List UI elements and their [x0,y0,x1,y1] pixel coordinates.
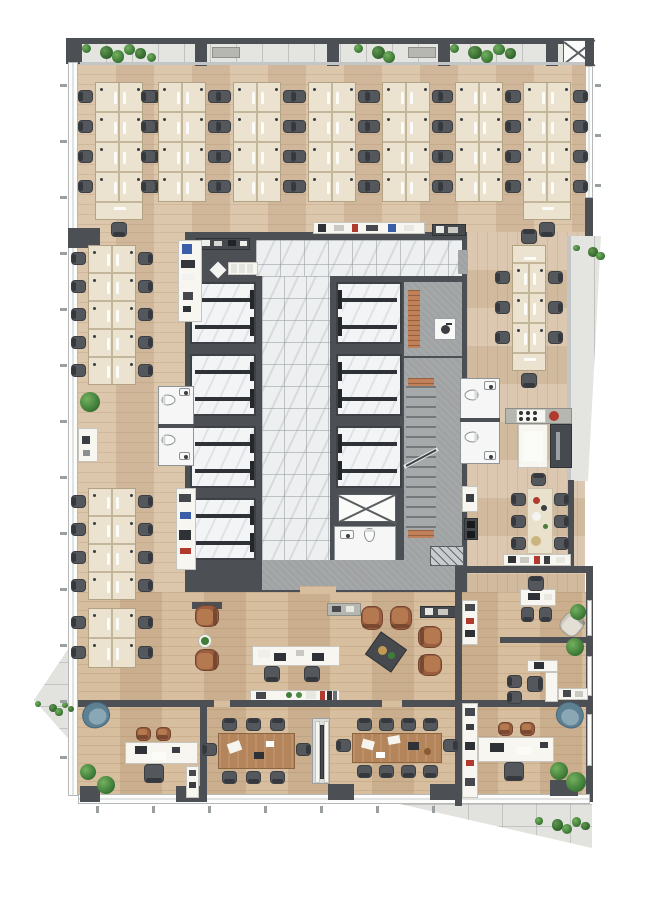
item [228,240,236,246]
meeting-chair [401,765,416,778]
monitor [401,122,404,134]
mullion-tick [432,806,435,813]
office-a-guest-2 [539,607,552,622]
task-chair [291,150,306,163]
monitor [177,152,180,164]
chair-back [533,474,544,478]
workstation-desk [455,142,479,172]
item [239,264,245,273]
mullion-tick [60,476,67,479]
item [575,691,583,697]
chair-back [496,333,500,342]
item [544,594,552,600]
locker-strip [408,290,420,348]
elevator-cab [190,354,256,416]
chair-back [148,648,152,657]
task-chair [291,120,306,133]
desk-item [275,118,278,121]
meeting-chair [246,771,261,784]
meeting-chair [296,743,311,756]
monitor [410,122,413,134]
task-chair [71,280,86,293]
terrace-br-plants [538,806,590,846]
elevator-rail [195,370,251,374]
desk-item [163,148,166,151]
monitor [107,618,110,630]
office-c-guest-2 [520,722,535,736]
workstation-desk [119,112,143,142]
plant-icon [35,701,41,707]
mullion-tick [60,308,67,311]
item [327,691,332,700]
monitor [524,333,527,345]
desk-item [565,88,568,91]
elevator-rail [341,442,397,446]
chair-back [79,122,83,131]
item [520,557,529,563]
sink [484,451,496,460]
item [408,742,419,750]
chair-back [530,577,542,581]
elevator-rail [195,298,251,302]
monitor [551,182,554,194]
monitor [252,182,255,194]
monitor [116,338,119,350]
monitor [116,366,119,378]
item [541,505,547,511]
faucet [184,391,188,395]
monitor [327,92,330,104]
item [467,521,475,528]
desk-item [238,148,241,151]
lounge-armchair [195,649,219,671]
door-slit [250,453,254,461]
task-chair [573,150,588,163]
elevator-door [250,506,254,552]
chair-back [248,779,259,783]
chair-back [523,383,535,387]
office-floor-plan [0,0,656,900]
monitor [114,92,117,104]
balcony-plants-3 [452,44,516,63]
elevator-rail [195,469,251,473]
item [318,224,326,232]
whiteboard-divider [312,718,330,784]
chair-back [148,525,152,534]
desk-item [275,178,278,181]
task-chair [71,308,86,321]
desk-item [130,251,133,254]
task-chair [495,331,510,344]
monitor [107,553,110,565]
item [490,743,504,752]
chair-back [381,719,392,723]
task-chair [71,495,86,508]
item [333,691,337,700]
desk-item [93,363,96,366]
cook-pot [549,411,559,421]
chair-back [224,779,235,783]
desk-item [238,178,241,181]
meeting-chair [246,718,261,731]
task-chair [78,150,93,163]
chair-back [508,677,512,686]
sideboard-left-wall [78,428,98,462]
task-chair [291,90,306,103]
monitor [107,525,110,537]
monitor [542,92,545,104]
mullion-tick [60,532,67,535]
armchair-back [499,730,510,734]
sink [340,530,354,539]
task-chair [438,90,453,103]
task-chair [138,646,153,659]
desk-item [93,578,96,581]
plant-left-strip [80,392,100,412]
task-chair [71,336,86,349]
item [152,752,166,760]
chair-back [381,773,392,777]
item [181,260,195,268]
item [254,752,264,759]
desk-item [130,550,133,553]
task-chair [141,180,156,193]
monitor [410,152,413,164]
chair-back [507,92,511,101]
monitor [327,152,330,164]
armchair-seat [559,706,582,728]
meeting-chair [270,771,285,784]
toilet [465,390,479,401]
item [523,431,543,461]
mullion-tick [208,806,211,813]
workstation-desk [88,608,112,638]
workstation-desk [88,329,112,357]
desk-item [528,118,531,121]
monitor [336,122,339,134]
elevator-door [250,362,254,408]
monitor [524,358,536,361]
desk-item [93,335,96,338]
task-chair [71,579,86,592]
wheelchair-icon [446,323,452,325]
balcony-bench-2 [408,47,436,58]
faucet [346,534,350,538]
meeting-chair [423,765,438,778]
workstation-desk [112,357,136,385]
workstation-desk [512,323,529,353]
item [465,604,475,611]
mullion-tick [60,196,67,199]
desk-item [130,363,133,366]
item [534,662,544,669]
desk-item [424,178,427,181]
wall-right-offices-top [460,566,590,573]
item [183,292,193,300]
task-chair [78,180,93,193]
workstation-desk [112,608,136,638]
item [320,691,325,700]
workstation-desk [158,172,182,202]
workstation-desk [112,245,136,273]
lounge-armchair [390,606,412,630]
workstation-desk [88,516,112,544]
item [526,411,530,415]
item [135,746,147,754]
elevator-rail [195,397,251,401]
meeting-chair [554,515,569,528]
desk-item [460,88,463,91]
pier-bottom-3 [328,784,354,800]
chair-back [512,495,516,504]
item [182,244,192,254]
chair-back [142,122,146,131]
mullion-tick [60,252,67,255]
desk-item [93,614,96,617]
task-chair [573,120,588,133]
chair-back [272,719,283,723]
armchair-back [521,730,532,734]
monitor [123,152,126,164]
chair-back [79,182,83,191]
accessible-sign [434,318,456,340]
task-chair [141,90,156,103]
monitor [123,122,126,134]
workstation-desk [88,544,112,572]
item [465,630,475,637]
window-right-lower-3 [587,714,592,766]
workstation-desk [88,245,112,273]
task-chair [216,120,231,133]
elevator-door [338,434,342,480]
chair-back [512,517,516,526]
armchair-seat [197,609,213,625]
balcony-bench-1 [212,47,240,58]
armchair-back [157,735,168,739]
desk-item [460,148,463,151]
workstation-desk [479,142,503,172]
workstation-desk [119,172,143,202]
task-chair [141,120,156,133]
chair-back [508,693,512,702]
item [214,241,222,246]
item [543,524,548,529]
task-chair [521,229,537,244]
task-chair [138,551,153,564]
workstation-desk [112,329,136,357]
chair-back [439,182,443,191]
mullion-tick [595,84,601,87]
desk-item [163,178,166,181]
monitor [524,303,527,315]
monitor [107,254,110,266]
chair-back [148,310,152,319]
workstation-desk [182,172,206,202]
item [366,225,378,231]
task-chair [71,252,86,265]
task-chair [521,373,537,388]
wc-annex-right-divider [460,418,500,422]
plant-icon [82,44,91,53]
mullion-tick [60,588,67,591]
desk-item [528,178,531,181]
workstation-desk [88,357,112,385]
door-slit [250,309,254,317]
office-left-chair [144,764,164,783]
desk-item [497,178,500,181]
chair-back [425,773,436,777]
task-chair [71,551,86,564]
item [467,531,475,538]
monitor [533,273,536,285]
chair-back [496,273,500,282]
task-chair [78,120,93,133]
sink [179,388,190,396]
chair-back [146,778,162,782]
workstation-desk [112,301,136,329]
door-slit [338,309,342,317]
monitor [533,303,536,315]
task-chair [71,616,86,629]
chair-back [425,719,436,723]
end-desk [95,202,143,220]
item [528,593,540,600]
workstation-desk [382,172,406,202]
whiteboard-panel [324,721,329,783]
shaft-core [338,494,396,522]
desk-item [163,88,166,91]
workstation-desk [112,572,136,600]
item [404,225,414,231]
desk-item [497,88,500,91]
desk-item [517,329,520,332]
workstation-desk [512,263,529,293]
chair-back [148,366,152,375]
monitor [107,338,110,350]
task-chair [548,331,563,344]
item [533,417,537,421]
plant-icon [112,50,124,62]
monitor [261,182,264,194]
reception-chair-2 [304,666,320,682]
desk-item [200,118,203,121]
item [424,748,431,755]
workstation-desk [182,82,206,112]
desk-item [137,88,140,91]
elevator-cab [336,282,402,344]
monitor [107,310,110,322]
office-b-guest-1 [507,675,522,688]
task-chair [111,222,127,237]
chair-back [306,677,318,681]
chair-back [142,182,146,191]
item [376,752,385,758]
monitor [252,152,255,164]
meeting-chair [379,718,394,731]
monitor [261,152,264,164]
workstation-desk [547,172,571,202]
task-chair [138,616,153,629]
desk-item [350,118,353,121]
workstation-desk [95,172,119,202]
item [240,241,247,246]
chair-back [366,182,370,191]
workstation-desk [523,112,547,142]
workstation-desk [382,142,406,172]
chair-back [148,338,152,347]
item [179,494,191,502]
task-chair [71,646,86,659]
desk-item [565,178,568,181]
elevator-rail [341,298,397,302]
chair-back [72,310,76,319]
item [179,530,191,540]
door-slit [338,381,342,389]
item [266,741,274,747]
task-chair [506,180,521,193]
armchair-back [420,627,424,645]
desk-item [93,494,96,497]
item [544,556,550,564]
plant-icon [493,44,505,56]
plant-office-a-1 [570,604,586,620]
chair-back [148,254,152,263]
desk-item [130,307,133,310]
task-chair [78,90,93,103]
monitor [410,182,413,194]
task-chair [365,90,380,103]
monitor [542,122,545,134]
monitor [114,152,117,164]
monitor [107,282,110,294]
item [466,494,474,502]
item [532,512,541,521]
monitor [123,92,126,104]
task-chair [138,523,153,536]
chair-back [541,232,553,236]
elevator-cab [336,426,402,488]
item [258,650,270,658]
item [556,557,565,563]
armchair-back [391,624,409,628]
chair-back [72,525,76,534]
desk-item [130,522,133,525]
desk-item [313,178,316,181]
desk-item [424,88,427,91]
plant-office-left-1 [80,764,96,780]
workstation-desk [95,142,119,172]
chair-back [148,282,152,291]
task-chair [506,120,521,133]
meeting-chair [336,739,351,752]
desk-item [130,335,133,338]
desk-item [163,118,166,121]
elevator-lobby [256,240,462,276]
workstation-desk [88,572,112,600]
balcony-plants-2 [356,44,392,63]
elevator-rail [195,325,251,329]
stair-rail-bottom [408,530,434,538]
item [556,432,560,460]
elevator-rail [195,442,251,446]
monitor [261,92,264,104]
desk-item [130,279,133,282]
desk-item [528,88,531,91]
monitor [116,497,119,509]
desk-item [387,178,390,181]
task-chair [365,180,380,193]
task-chair [138,308,153,321]
